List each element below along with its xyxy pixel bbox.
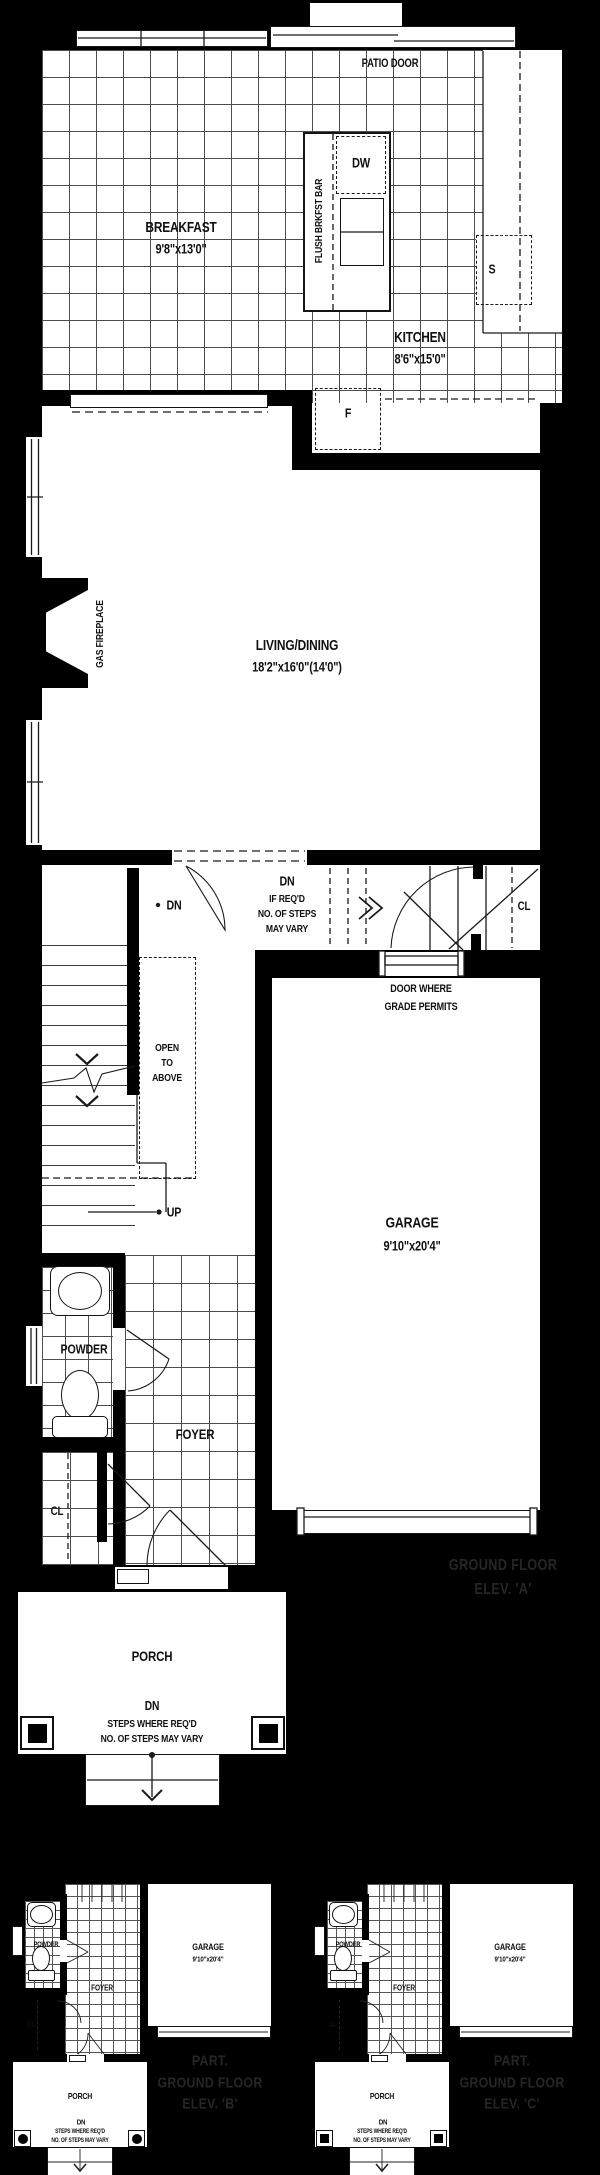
mini-garage-door [157, 2026, 271, 2038]
powder-wall-bottom [42, 1437, 125, 1452]
powder-wall-top [42, 1253, 125, 1267]
mini-elev-caption-1: PART. [494, 2053, 530, 2070]
dn-note-2: NO. OF STEPS [258, 908, 316, 920]
kitchen-dims: 8'6"x15'0" [394, 352, 445, 367]
sink-label: S [489, 262, 496, 277]
living-window-upper [26, 437, 44, 557]
dishwasher-label: DW [352, 156, 370, 171]
front-door-sill [117, 1569, 149, 1584]
mini-powder-wall-bottom [20, 1988, 67, 1995]
mini-closet-label: CL [27, 2022, 34, 2029]
dn-note-3: MAY VARY [266, 923, 308, 935]
living-dining-dims: 18'2"x16'0"(14'0") [252, 660, 342, 675]
mini-garage-label: GARAGE [192, 1942, 223, 1952]
stair-stringer-wall [127, 868, 139, 1095]
porch-pillar-left [20, 1716, 54, 1750]
mini-foyer-floor [367, 1884, 442, 2054]
staircase-treads [42, 926, 135, 1234]
floor-plan-sheet: PATIO DOOR BREAKFAST 9'8"x13'0" FLUSH BR… [0, 0, 600, 2175]
mini-note-1: STEPS WHERE REQ'D [55, 2129, 105, 2135]
powder-sink-basin [58, 1272, 102, 1310]
toilet-bowl [61, 1370, 99, 1420]
closet-upper-label: CL [518, 899, 531, 913]
porch-label: PORCH [132, 1648, 173, 1664]
mini-powder-label: POWDER [34, 1942, 59, 1949]
powder-label: POWDER [61, 1342, 108, 1357]
mini-toilet-bowl [32, 1946, 50, 1971]
mini-sink-basin [332, 1905, 355, 1924]
porch-steps [85, 1754, 220, 1806]
mini-powder-window [314, 1926, 325, 1956]
door-grade-1: DOOR WHERE [390, 983, 452, 995]
mini-front-door-sill [69, 2055, 86, 2062]
mini-garage-dims: 9'10"x20'4" [495, 1955, 526, 1964]
mini-garage-label: GARAGE [494, 1942, 525, 1952]
mini-foyer-label: FOYER [91, 1984, 113, 1993]
mini-garage-door [459, 2026, 573, 2038]
open-to-above-2: TO [161, 1057, 172, 1069]
mini-note-2: NO. OF STEPS MAY VARY [51, 2138, 108, 2144]
porch-dn-label: DN [145, 1699, 159, 1713]
mini-elev-caption-3: ELEV. 'B' [182, 2096, 238, 2113]
patio-door-slab [310, 3, 402, 28]
patio-door-label: PATIO DOOR [362, 58, 419, 70]
mini-elev-caption-3: ELEV. 'C' [484, 2096, 540, 2113]
breakfast-window [76, 30, 268, 47]
foyer-label: FOYER [176, 1426, 215, 1442]
island-cabinet [340, 198, 384, 266]
gas-fireplace-label: GAS FIREPLACE [94, 600, 106, 668]
mini-note-1: STEPS WHERE REQ'D [357, 2129, 407, 2135]
elevation-caption-1: GROUND FLOOR [449, 1557, 557, 1575]
patio-door-band [270, 26, 516, 48]
living-dining-label: LIVING/DINING [256, 638, 338, 654]
mini-closet-dash [37, 2000, 38, 2050]
mini-closet-dash [339, 2000, 340, 2050]
nook-wall-horizontal [292, 453, 587, 470]
mini-closet-label: CL [329, 2022, 336, 2029]
fridge-label: F [345, 406, 351, 421]
mini-pillar-right [430, 2130, 447, 2147]
mini-porch-label: PORCH [68, 2091, 92, 2101]
mini-note-2: NO. OF STEPS MAY VARY [353, 2138, 410, 2144]
mini-powder-window [12, 1926, 23, 1956]
elevation-caption-2: ELEV. 'A' [474, 1581, 531, 1599]
powder-door-opening [113, 1328, 125, 1390]
mini-porch-steps [47, 2147, 113, 2175]
toilet-tank [52, 1416, 108, 1438]
mini-dn-label: DN [379, 2118, 388, 2127]
nook-wall-vertical [292, 398, 312, 460]
flush-brkfst-bar-label: FLUSH BRKFST BAR [313, 179, 325, 263]
mini-porch-label: PORCH [370, 2091, 394, 2101]
dn-note-1: IF REQ'D [269, 893, 305, 905]
porch-note-1: STEPS WHERE REQ'D [107, 1718, 196, 1730]
mini-elev-caption-2: GROUND FLOOR [157, 2075, 262, 2092]
garage-label: GARAGE [385, 1215, 438, 1232]
up-label: UP [167, 1205, 181, 1220]
garage-dims: 9'10"x20'4" [383, 1239, 440, 1254]
powder-window [26, 1326, 42, 1386]
kitchen-label: KITCHEN [394, 330, 446, 346]
sink-box [476, 235, 532, 305]
door-grade-2: GRADE PERMITS [384, 1001, 457, 1013]
mini-closet-wall [56, 2000, 62, 2028]
mini-closet-wall [358, 2000, 364, 2028]
dn-steps-label: DN [279, 874, 294, 889]
mini-toilet-tank [28, 1970, 55, 1981]
mini-garage-dims: 9'10"x20'4" [193, 1955, 224, 1964]
mini-elev-caption-2: GROUND FLOOR [459, 2075, 564, 2092]
mini-porch-steps [349, 2147, 415, 2175]
open-to-above-1: OPEN [155, 1042, 179, 1054]
mini-powder-label: POWDER [336, 1942, 361, 1949]
mini-powder-wall-bottom [322, 1988, 369, 1995]
hall-archway [172, 848, 307, 865]
mini-foyer-floor [65, 1884, 140, 2054]
breakfast-dims: 9'8"x13'0" [155, 242, 206, 257]
mini-pillar-left [316, 2130, 333, 2147]
mini-powder-wall-right-upper [362, 1894, 369, 1940]
dn-door-label: DN [166, 898, 181, 913]
partial-plan-elev-c: POWDER FOYER CL GARAGE 9'10"x20'4" PORCH… [314, 1878, 600, 2175]
open-to-above-3: ABOVE [152, 1072, 182, 1084]
garage-entry-door-opening [381, 952, 463, 976]
mini-elev-caption-1: PART. [192, 2053, 228, 2070]
mini-front-door-sill [371, 2055, 388, 2062]
mini-powder-wall-right-upper [60, 1894, 67, 1940]
mini-toilet-tank [330, 1970, 357, 1981]
garage-door [302, 1510, 532, 1534]
closet-lower-label: CL [51, 1504, 64, 1518]
beam-opening [70, 394, 268, 408]
partial-plan-elev-b: POWDER FOYER CL GARAGE 9'10"x20'4" PORCH… [12, 1878, 298, 2175]
porch-note-2: NO. OF STEPS MAY VARY [101, 1733, 204, 1745]
mini-pillar-right [128, 2130, 145, 2147]
mini-foyer-label: FOYER [393, 1984, 415, 1993]
mini-powder-door-gap [60, 1940, 67, 1962]
living-dining-floor [42, 403, 540, 850]
mini-toilet-bowl [334, 1946, 352, 1971]
closet-wall [97, 1452, 107, 1542]
mini-powder-door-gap [362, 1940, 369, 1962]
foyer-tile-floor [125, 1255, 255, 1567]
porch-pillar-right [251, 1716, 285, 1750]
mini-pillar-left [14, 2130, 31, 2147]
mini-dn-label: DN [77, 2118, 86, 2127]
breakfast-label: BREAKFAST [145, 220, 216, 236]
mini-sink-basin [30, 1905, 53, 1924]
living-window-lower [26, 720, 44, 845]
